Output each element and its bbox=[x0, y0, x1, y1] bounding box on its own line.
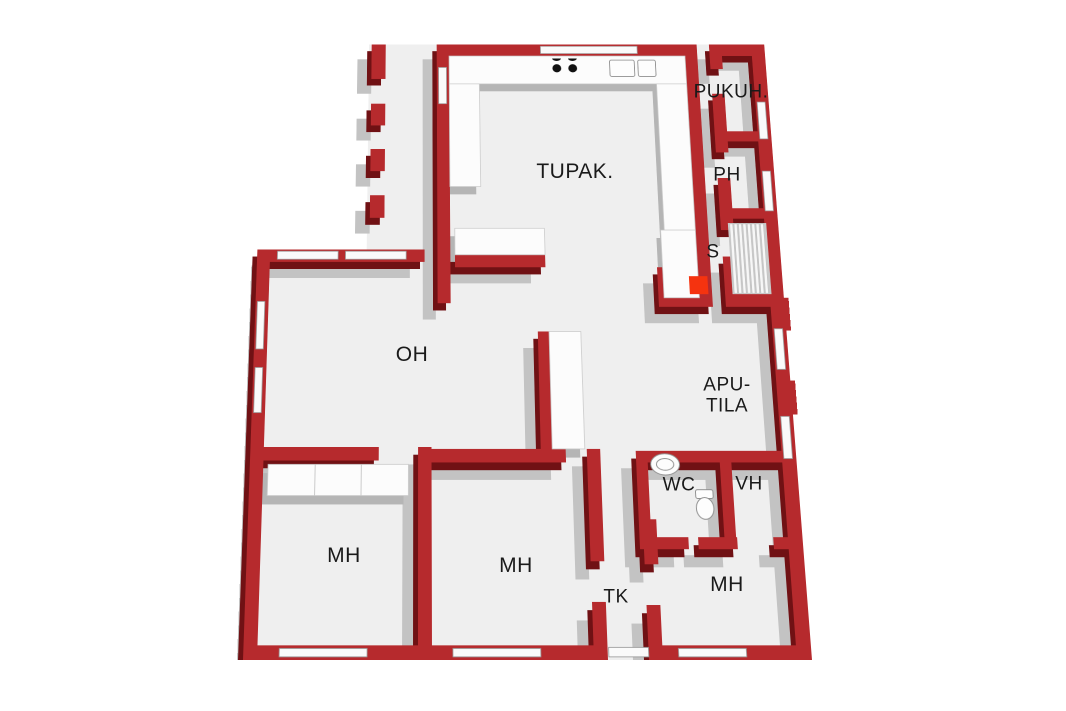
kitchen-sink bbox=[609, 60, 656, 76]
plan-3d-scene bbox=[0, 0, 1066, 711]
entry-threshold bbox=[609, 647, 649, 656]
plan-tilted-board bbox=[237, 45, 817, 660]
sauna-stove bbox=[689, 276, 709, 294]
wc-toilet bbox=[695, 490, 714, 520]
floor-plan-svg bbox=[237, 45, 817, 660]
sauna-benches bbox=[728, 223, 772, 294]
wc-sink bbox=[650, 454, 680, 475]
floorplan-canvas: TUPAK. PUKUH. PH S OH APU-TILA WC VH MH … bbox=[0, 0, 1066, 711]
